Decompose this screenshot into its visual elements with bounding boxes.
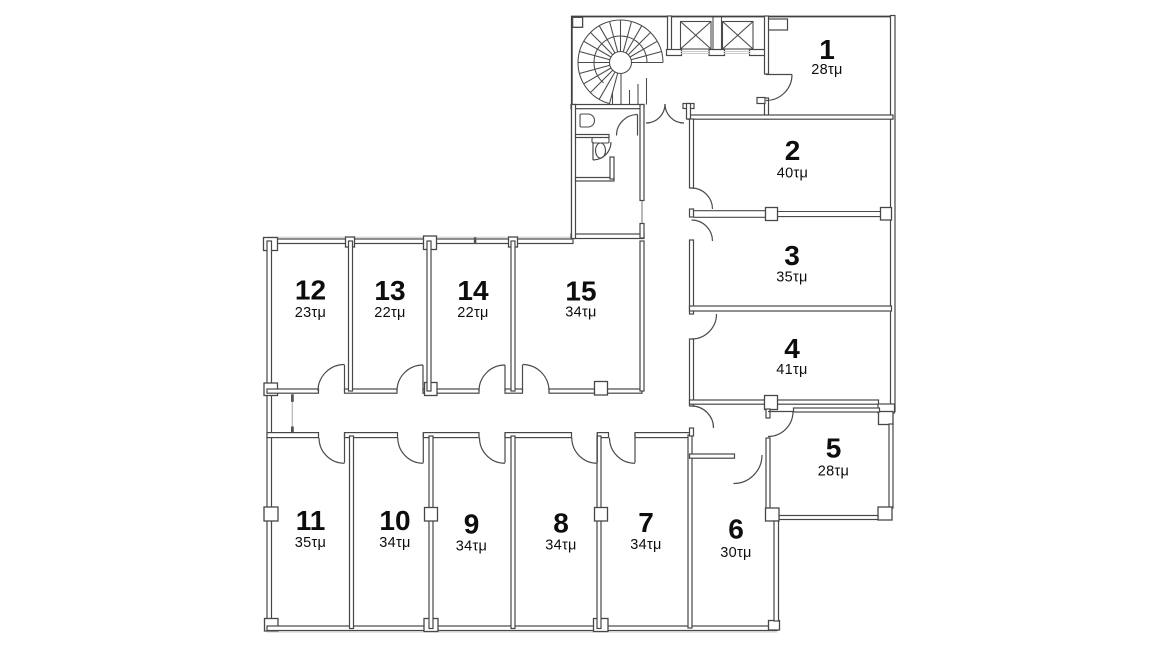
svg-text:6: 6 (728, 513, 744, 544)
svg-text:22τμ: 22τμ (457, 305, 488, 321)
svg-text:15: 15 (565, 275, 596, 306)
svg-text:2: 2 (785, 135, 801, 166)
svg-text:35τμ: 35τμ (776, 269, 807, 285)
svg-text:28τμ: 28τμ (811, 62, 842, 78)
svg-text:30τμ: 30τμ (720, 545, 751, 561)
svg-text:14: 14 (457, 275, 489, 306)
svg-text:34τμ: 34τμ (565, 304, 596, 320)
svg-text:7: 7 (638, 507, 654, 538)
svg-text:34τμ: 34τμ (379, 535, 410, 551)
svg-text:22τμ: 22τμ (374, 305, 405, 321)
svg-text:3: 3 (784, 240, 800, 271)
svg-text:9: 9 (464, 508, 480, 539)
svg-text:34τμ: 34τμ (545, 537, 576, 553)
svg-text:35τμ: 35τμ (295, 535, 326, 551)
svg-text:1: 1 (819, 34, 835, 65)
svg-text:28τμ: 28τμ (818, 463, 849, 479)
svg-text:5: 5 (826, 432, 842, 463)
svg-text:34τμ: 34τμ (630, 537, 661, 553)
svg-text:4: 4 (784, 333, 800, 364)
svg-text:12: 12 (295, 275, 326, 306)
svg-text:41τμ: 41τμ (776, 362, 807, 378)
svg-text:23τμ: 23τμ (295, 305, 326, 321)
svg-text:10: 10 (379, 505, 410, 536)
svg-text:13: 13 (374, 275, 405, 306)
svg-text:11: 11 (296, 505, 326, 536)
svg-text:34τμ: 34τμ (456, 538, 487, 554)
svg-text:40τμ: 40τμ (777, 165, 808, 181)
svg-text:8: 8 (553, 507, 569, 538)
